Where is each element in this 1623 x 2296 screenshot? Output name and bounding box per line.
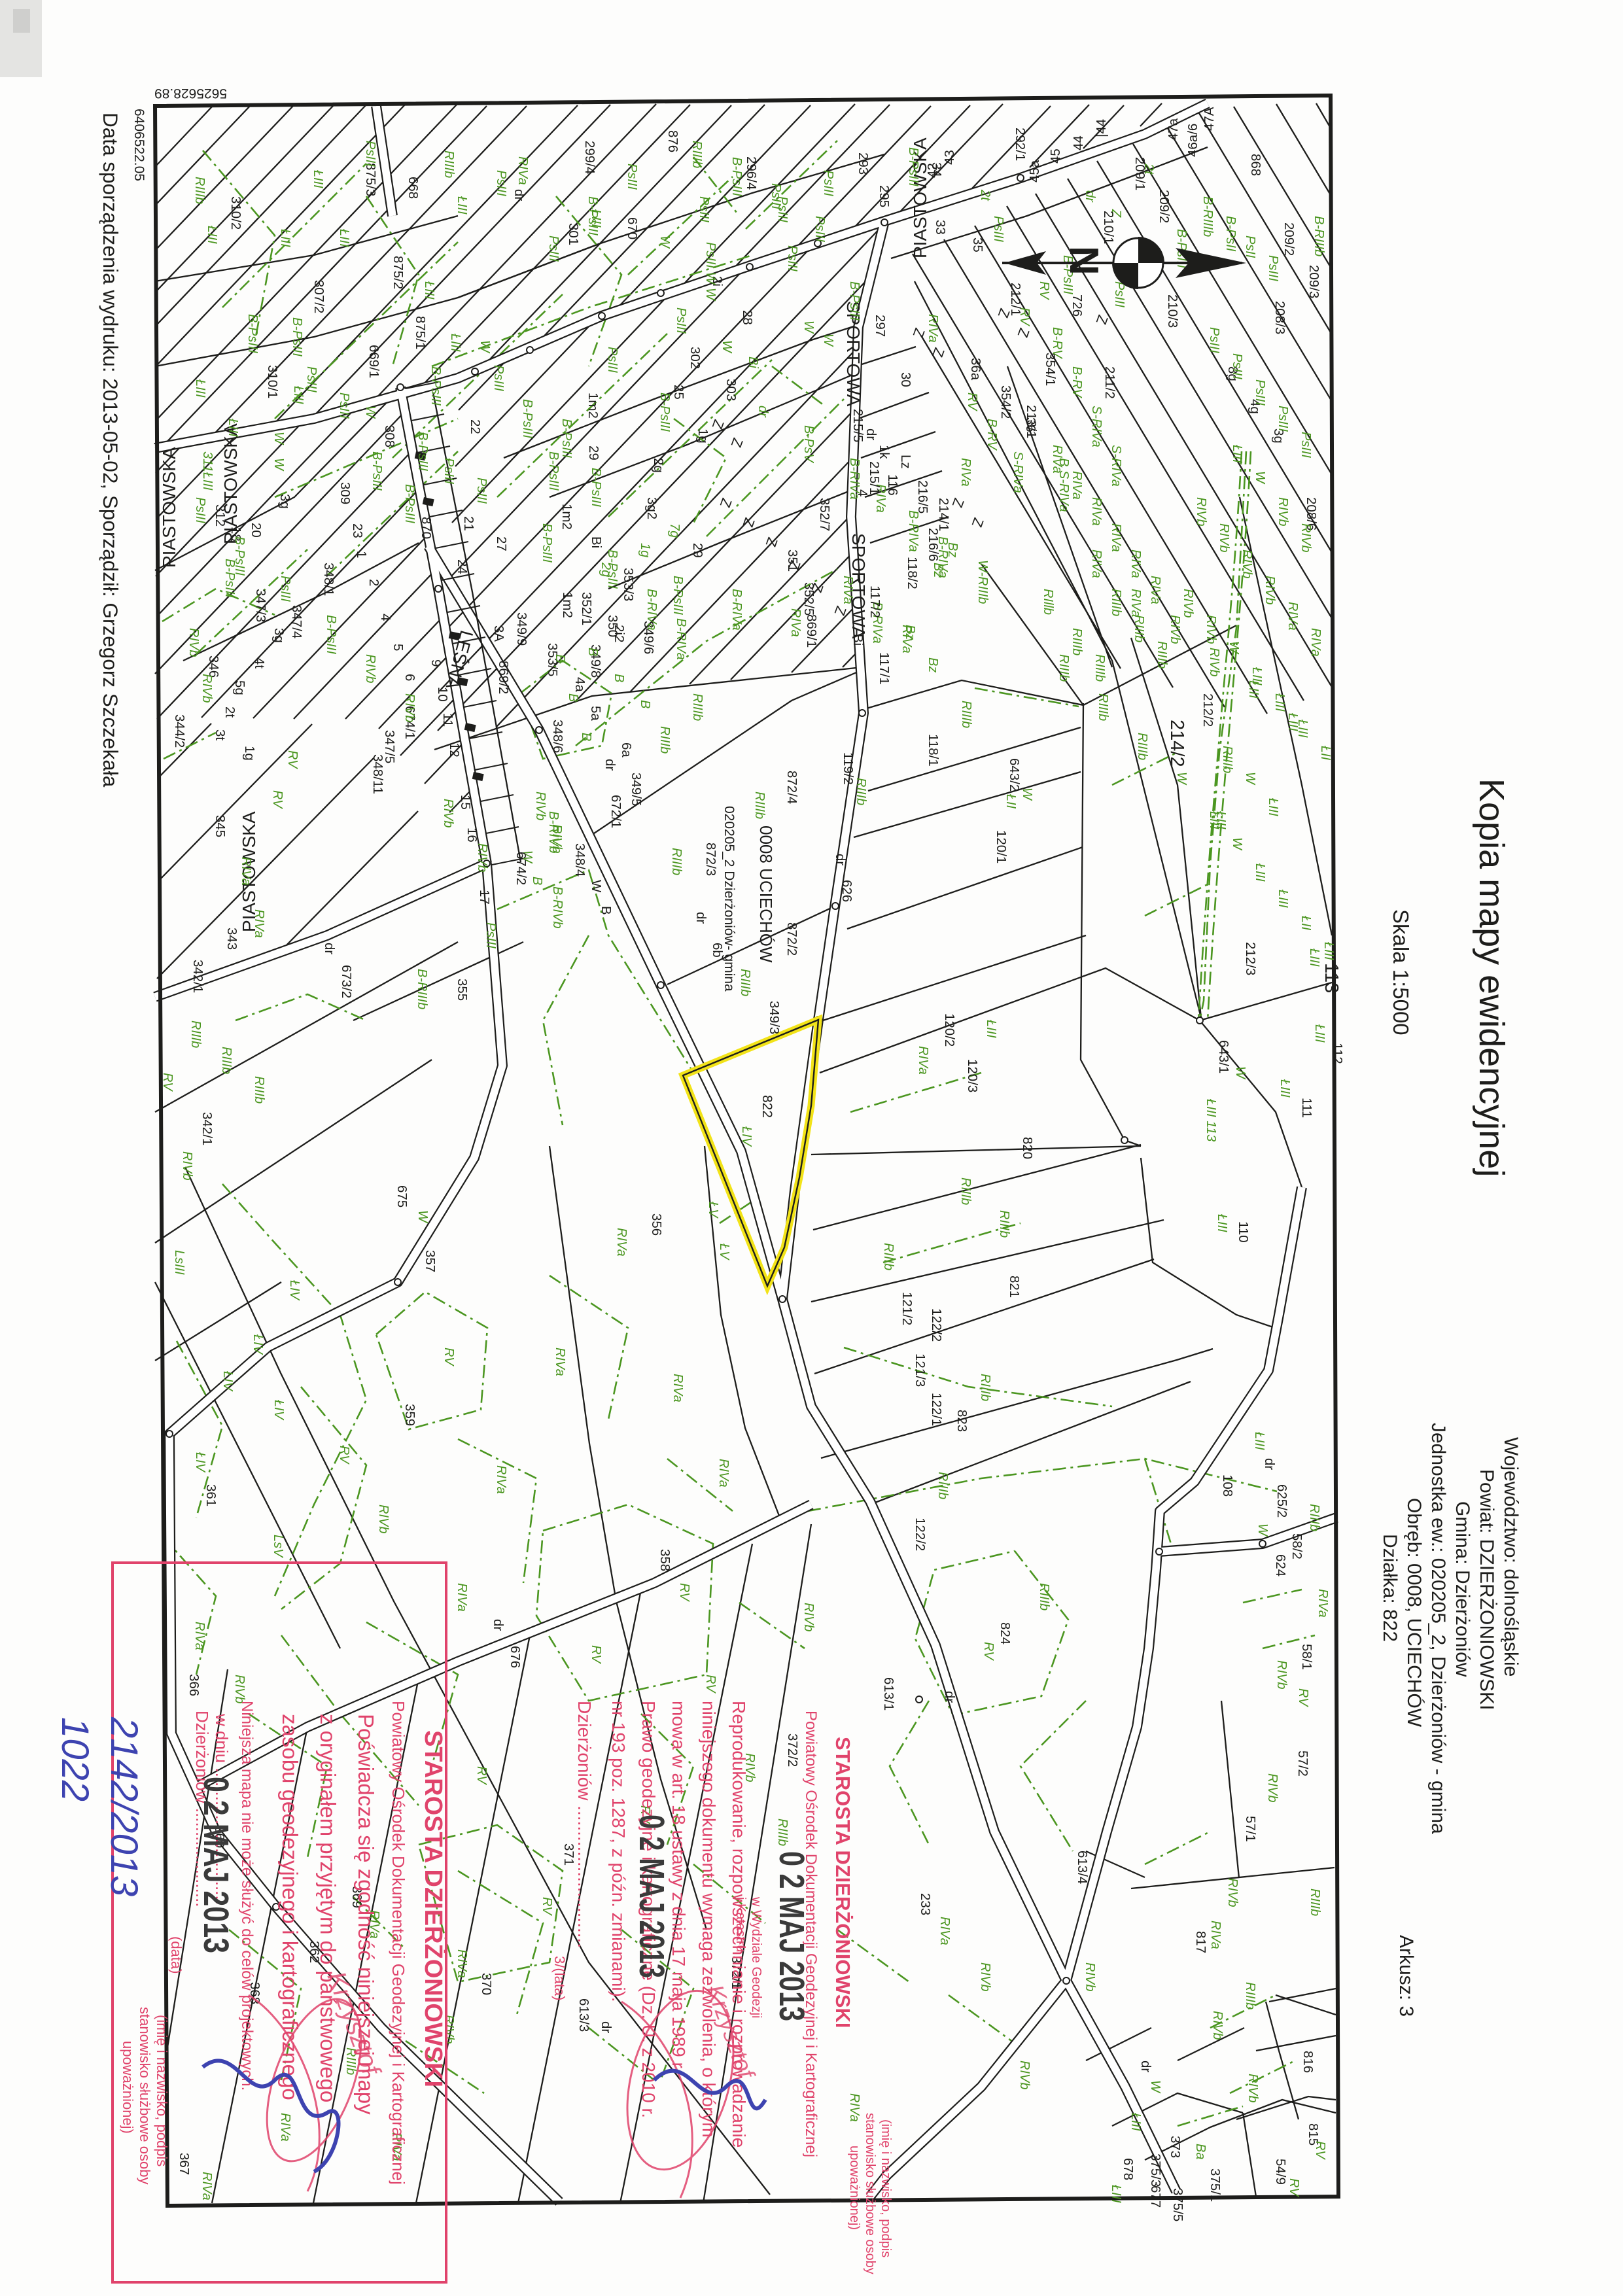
svg-text:1m2: 1m2 — [585, 392, 601, 419]
svg-text:ŁII: ŁII — [1299, 916, 1313, 931]
svg-text:824: 824 — [998, 1622, 1013, 1644]
svg-text:i Katastru: i Katastru — [733, 1897, 748, 1952]
svg-text:1022: 1022 — [54, 1717, 96, 1801]
svg-text:0 2 MAJ 2013: 0 2 MAJ 2013 — [632, 1815, 671, 1978]
svg-text:1m2: 1m2 — [560, 592, 575, 618]
svg-text:ŁII: ŁII — [1318, 746, 1333, 761]
svg-text:0 2 MAJ 2013: 0 2 MAJ 2013 — [196, 1777, 236, 1953]
svg-text:RV: RV — [589, 1645, 603, 1664]
svg-text:B-RIIIb: B-RIIIb — [1312, 216, 1326, 256]
svg-text:dr: dr — [756, 406, 770, 418]
svg-text:PsIII: PsIII — [812, 216, 827, 242]
svg-text:RIVb: RIVb — [1194, 497, 1208, 526]
svg-text:215/5: 215/5 — [850, 409, 865, 442]
svg-text:B-PsIII: B-PsIII — [370, 451, 384, 491]
svg-text:302: 302 — [688, 347, 703, 369]
svg-text:120/2: 120/2 — [942, 1013, 957, 1047]
svg-text:367: 367 — [177, 2153, 192, 2175]
svg-text:0 2 MAJ 2013: 0 2 MAJ 2013 — [772, 1851, 811, 2021]
svg-text:B-PsIII: B-PsIII — [671, 576, 685, 615]
svg-text:23: 23 — [350, 523, 365, 538]
svg-text:2t: 2t — [222, 706, 237, 718]
svg-text:PsIII: PsIII — [474, 478, 489, 504]
svg-text:348/4: 348/4 — [572, 843, 587, 877]
svg-text:dr: dr — [602, 759, 618, 771]
svg-text:ŁIII: ŁIII — [1252, 1432, 1266, 1450]
svg-text:Jednostka ew.: 020205_2, Dzier: Jednostka ew.: 020205_2, Dzierżoniów - g… — [1427, 1423, 1449, 1834]
svg-text:RIIIb: RIIIb — [1056, 654, 1071, 682]
svg-text:RIVb: RIVb — [180, 1151, 194, 1180]
svg-text:STAROSTA DZIERŻONIOWSKI: STAROSTA DZIERŻONIOWSKI — [831, 1737, 854, 2028]
svg-text:375/1: 375/1 — [1208, 2168, 1223, 2202]
svg-text:RIIIb: RIIIb — [657, 726, 672, 754]
svg-text:PsII: PsII — [1243, 235, 1257, 258]
svg-text:625/2: 625/2 — [1274, 1484, 1289, 1518]
svg-text:5: 5 — [391, 644, 406, 651]
svg-text:361: 361 — [203, 1484, 218, 1506]
svg-text:46a/6: 46a/6 — [1185, 124, 1200, 157]
svg-text:118/1: 118/1 — [926, 734, 941, 767]
svg-text:823: 823 — [954, 1410, 969, 1432]
svg-text:Powiatowy Ośrodek Dokumentacji: Powiatowy Ośrodek Dokumentacji Geodezyjn… — [389, 1701, 408, 2185]
svg-text:PsIII: PsIII — [821, 170, 835, 196]
svg-text:209/3: 209/3 — [1306, 265, 1321, 298]
svg-text:ŁIII: ŁIII — [226, 419, 240, 437]
svg-text:RIIIb: RIIIb — [219, 1047, 234, 1074]
svg-text:24: 24 — [455, 559, 470, 574]
svg-text:4t: 4t — [252, 657, 267, 669]
svg-text:ŁIII: ŁIII — [1276, 890, 1290, 908]
svg-text:RIVb: RIVb — [1225, 1878, 1240, 1907]
svg-text:B-PsIII: B-PsIII — [324, 615, 338, 654]
svg-text:B: B — [579, 733, 593, 741]
svg-text:PsIII: PsIII — [483, 922, 498, 948]
svg-text:stanowisko służbowe osoby: stanowisko służbowe osoby — [137, 2007, 153, 2184]
svg-text:W: W — [1174, 772, 1189, 786]
svg-text:3t: 3t — [213, 729, 228, 740]
svg-text:RV: RV — [160, 1073, 175, 1092]
svg-text:B-PsIII: B-PsIII — [906, 147, 920, 186]
svg-text:RIIIb: RIIIb — [192, 177, 207, 204]
svg-text:RIVb: RIVb — [1181, 589, 1195, 617]
svg-text:dr: dr — [942, 1691, 957, 1703]
svg-text:B: B — [553, 654, 567, 663]
svg-text:RV: RV — [677, 1583, 691, 1602]
svg-text:678: 678 — [1121, 2158, 1136, 2180]
svg-text:303: 303 — [724, 379, 739, 401]
svg-text:RV: RV — [270, 790, 285, 809]
svg-text:RIIIb: RIIIb — [935, 1472, 950, 1499]
svg-text:S-RIVa: S-RIVa — [1109, 445, 1123, 487]
svg-text:RIVb: RIVb — [1168, 615, 1182, 644]
svg-text:ŁIV: ŁIV — [251, 1334, 265, 1355]
svg-text:dr: dr — [512, 189, 527, 201]
svg-text:349/3: 349/3 — [767, 1001, 782, 1034]
svg-text:214/1: 214/1 — [936, 498, 951, 531]
svg-text:PsIII: PsIII — [1230, 353, 1244, 379]
svg-text:B-RIVa: B-RIVa — [906, 510, 920, 552]
svg-text:118/2: 118/2 — [905, 557, 920, 589]
svg-text:3A: 3A — [491, 625, 506, 642]
svg-text:RIVa: RIVa — [252, 909, 266, 938]
svg-text:613/1: 613/1 — [881, 1677, 896, 1711]
svg-text:RIVb: RIVb — [1210, 2011, 1225, 2040]
svg-text:RIIIb: RIIIb — [775, 1818, 790, 1846]
svg-text:1g: 1g — [638, 543, 652, 557]
svg-text:122/2: 122/2 — [913, 1518, 928, 1551]
svg-text:RIVa: RIVa — [841, 576, 855, 604]
svg-text:213/1: 213/1 — [1024, 405, 1039, 438]
svg-text:B-PsIII: B-PsIII — [657, 392, 672, 432]
svg-text:PsIII: PsIII — [363, 141, 377, 167]
svg-text:B-PsIII: B-PsIII — [232, 536, 247, 576]
svg-text:ŁIII: ŁIII — [1266, 798, 1280, 816]
svg-text:ŁII: ŁII — [1003, 794, 1018, 809]
svg-text:33: 33 — [933, 220, 948, 235]
svg-text:ŁIII: ŁIII — [422, 281, 436, 300]
svg-text:10: 10 — [435, 687, 450, 702]
svg-text:211/2: 211/2 — [1102, 366, 1117, 399]
svg-text:121/3: 121/3 — [913, 1353, 928, 1387]
svg-text:ŁIV: ŁIV — [739, 1126, 754, 1147]
svg-text:RIVb: RIVb — [978, 1962, 992, 1991]
svg-text:3g: 3g — [277, 494, 292, 509]
svg-text:W: W — [1020, 788, 1034, 801]
svg-text:ŁIII: ŁIII — [1215, 1214, 1229, 1232]
svg-text:RIVa: RIVa — [192, 1622, 207, 1650]
svg-text:210/1: 210/1 — [1101, 211, 1116, 244]
svg-text:020205_2 Dzierżoniów- gmina: 020205_2 Dzierżoniów- gmina — [722, 806, 737, 992]
svg-text:LsIII: LsIII — [172, 1250, 186, 1275]
svg-text:ŁIII: ŁIII — [1109, 2185, 1123, 2203]
svg-text:2g: 2g — [651, 458, 666, 473]
svg-text:RIIIb: RIIIb — [738, 969, 752, 996]
svg-text:210/3: 210/3 — [1165, 294, 1180, 328]
svg-text:RIVb: RIVb — [1276, 497, 1290, 526]
svg-text:ŁV: ŁV — [717, 1244, 731, 1261]
svg-text:875/2: 875/2 — [391, 256, 406, 289]
svg-text:2t: 2t — [978, 189, 992, 201]
svg-text:W: W — [415, 1210, 430, 1224]
svg-text:Powiat: DZIERŻONIOWSKI: Powiat: DZIERŻONIOWSKI — [1476, 1469, 1497, 1710]
svg-text:B-RIVb: B-RIVb — [550, 886, 565, 928]
svg-text:875/1: 875/1 — [413, 316, 428, 349]
svg-text:817: 817 — [1193, 1931, 1208, 1953]
svg-text:RIVb: RIVb — [376, 1505, 391, 1533]
svg-text:116: 116 — [885, 474, 900, 496]
svg-text:RV: RV — [1037, 281, 1051, 300]
svg-text:44: 44 — [1071, 135, 1086, 150]
svg-text:RIVa: RIVa — [455, 1949, 469, 1978]
svg-text:307/2: 307/2 — [311, 280, 326, 313]
svg-text:RIIIb: RIIIb — [881, 1243, 896, 1270]
svg-text:366: 366 — [186, 1674, 201, 1696]
svg-text:RIIIb: RIIIb — [252, 1076, 266, 1104]
svg-text:1m2: 1m2 — [559, 504, 574, 530]
svg-text:726: 726 — [1070, 294, 1085, 317]
svg-text:ŁIII: ŁIII — [1272, 693, 1287, 712]
svg-text:RIVa: RIVa — [916, 1046, 930, 1075]
svg-text:11: 11 — [440, 713, 455, 727]
svg-text:RV: RV — [474, 1766, 489, 1785]
svg-text:57/2: 57/2 — [1295, 1750, 1310, 1777]
svg-text:W: W — [271, 458, 286, 472]
svg-text:670: 670 — [625, 217, 640, 239]
svg-text:RIVa: RIVa — [1208, 1921, 1223, 1949]
svg-text:299/4: 299/4 — [582, 141, 597, 174]
svg-text:Skala 1:5000: Skala 1:5000 — [1389, 909, 1413, 1035]
svg-text:B-PsV: B-PsV — [801, 425, 816, 463]
svg-text:RV: RV — [1313, 2141, 1327, 2160]
svg-text:348/6: 348/6 — [550, 720, 565, 753]
svg-text:RIVa: RIVa — [847, 2093, 862, 2122]
svg-text:dr: dr — [693, 912, 708, 924]
svg-text:4: 4 — [855, 489, 870, 496]
svg-text:Bi: Bi — [589, 536, 604, 548]
svg-text:343: 343 — [224, 928, 239, 950]
svg-text:RIVb: RIVb — [1265, 1773, 1280, 1802]
svg-text:347/4: 347/4 — [289, 605, 304, 638]
svg-text:233: 233 — [918, 1893, 933, 1915]
svg-text:RIVa: RIVa — [671, 1374, 685, 1402]
svg-text:W: W — [821, 334, 835, 347]
svg-text:LsV: LsV — [271, 1535, 285, 1558]
svg-text:209/2: 209/2 — [1282, 222, 1297, 256]
svg-text:RIIIb: RIIIb — [1308, 1888, 1322, 1916]
svg-text:295: 295 — [877, 185, 892, 207]
svg-text:B-RIVb: B-RIVb — [546, 811, 561, 853]
svg-text:PsIII W W: PsIII W W — [703, 242, 718, 302]
svg-text:Obręb: 0008, UCIECHÓW: Obręb: 0008, UCIECHÓW — [1403, 1498, 1425, 1728]
svg-text:668: 668 — [406, 177, 421, 199]
svg-text:PsIII: PsIII — [491, 365, 506, 391]
svg-text:PsIII: PsIII — [1299, 432, 1313, 458]
svg-text:352/1: 352/1 — [579, 592, 594, 625]
svg-text:PsIII: PsIII — [1112, 281, 1126, 307]
svg-text:ŁIII: ŁIII — [1321, 942, 1336, 960]
svg-text:355: 355 — [455, 979, 470, 1001]
svg-text:RIIIb: RIIIb — [978, 1374, 992, 1401]
svg-text:W: W — [1233, 1066, 1248, 1080]
svg-text:209/1: 209/1 — [1132, 157, 1147, 190]
svg-text:B-PsIII: B-PsIII — [847, 281, 862, 321]
svg-text:348/1: 348/1 — [321, 563, 336, 596]
svg-text:673/2: 673/2 — [339, 965, 354, 998]
svg-text:357: 357 — [423, 1250, 438, 1272]
svg-text:RIVa: RIVa — [716, 1459, 731, 1487]
svg-text:1g: 1g — [242, 746, 257, 761]
svg-text:359: 359 — [402, 1404, 417, 1426]
svg-text:PsIII: PsIII — [605, 347, 620, 373]
svg-text:3g: 3g — [271, 628, 287, 643]
svg-text:RIVa: RIVa — [788, 608, 803, 637]
svg-text:niniejszego dokumentu wymaga z: niniejszego dokumentu wymaga zezwolenia,… — [699, 1701, 719, 2138]
svg-text:6a: 6a — [619, 742, 634, 757]
svg-text:373: 373 — [1168, 2136, 1183, 2158]
svg-text:16: 16 — [464, 827, 480, 843]
svg-text:119/2: 119/2 — [841, 752, 856, 785]
svg-text:122/2: 122/2 — [929, 1308, 944, 1342]
svg-text:RIVa: RIVa — [926, 314, 940, 343]
svg-text:RIIIb: RIIIb — [959, 701, 973, 728]
svg-text:RIVb: RIVb — [1274, 1660, 1289, 1689]
svg-text:B-RV: B-RV — [985, 419, 999, 451]
svg-text:310/2: 310/2 — [228, 196, 243, 230]
svg-text:PsIII: PsIII — [991, 216, 1005, 242]
svg-text:RIIIb: RIIIb — [1243, 1982, 1257, 2009]
svg-text:347/3: 347/3 — [253, 589, 268, 622]
svg-text:RIVb: RIVb — [1207, 648, 1221, 676]
svg-text:353/3: 353/3 — [621, 568, 636, 601]
svg-text:5625628.89: 5625628.89 — [154, 86, 227, 101]
svg-text:PsIII: PsIII — [1207, 327, 1221, 353]
svg-text:42: 42 — [925, 163, 940, 178]
svg-text:RIIIb: RIIIb — [690, 693, 705, 721]
svg-text:PsIII: PsIII — [304, 366, 319, 392]
svg-text:RIIIb: RIIIb — [1092, 654, 1107, 682]
svg-text:677: 677 — [1148, 2185, 1163, 2208]
svg-text:dr: dr — [491, 1619, 506, 1631]
svg-text:RIVb: RIVb — [1017, 2061, 1032, 2089]
svg-text:309: 309 — [338, 482, 353, 504]
svg-text:(data): (data) — [168, 1936, 184, 1974]
svg-text:RIVb: RIVb — [1246, 2074, 1260, 2102]
svg-text:B-PsIII: B-PsIII — [585, 196, 600, 235]
svg-text:PsIII: PsIII — [193, 497, 207, 523]
svg-text:ŁIII: ŁIII — [1285, 713, 1300, 731]
svg-text:ŁIII: ŁIII — [1253, 863, 1267, 882]
svg-text:RIVb: RIVb — [1083, 1962, 1097, 1991]
svg-text:RIVb: RIVb — [533, 791, 548, 820]
svg-text:zasobu geodezyjnego i kartogra: zasobu geodezyjnego i kartograficznego — [278, 1714, 302, 2100]
svg-text:B: B — [585, 648, 600, 656]
svg-text:1g: 1g — [695, 428, 710, 444]
svg-text:ŁIII: ŁIII — [193, 379, 207, 398]
svg-text:W: W — [1227, 641, 1241, 655]
svg-text:PIASTOWSKA: PIASTOWSKA — [220, 423, 241, 544]
svg-text:B-PsIII: B-PsIII — [520, 399, 534, 438]
svg-text:121/2: 121/2 — [899, 1292, 915, 1325]
svg-text:54/9: 54/9 — [1273, 2159, 1288, 2185]
svg-text:RV: RV — [703, 1675, 718, 1694]
svg-text:ŁIII 113: ŁIII 113 — [1204, 1099, 1218, 1141]
svg-text:(imię i nazwisko, podpis: (imię i nazwisko, podpis — [154, 2015, 170, 2166]
svg-text:B-PsIII: B-PsIII — [415, 432, 430, 471]
svg-text:ŁIII: ŁIII — [311, 170, 325, 188]
svg-text:dr: dr — [864, 428, 879, 440]
svg-text:B-PsIII: B-PsIII — [546, 451, 561, 491]
svg-text:RIIIb: RIIIb — [689, 141, 704, 168]
svg-text:RIVa: RIVa — [1089, 549, 1104, 578]
svg-text:B-PsIII: B-PsIII — [589, 468, 603, 507]
svg-text:208/3: 208/3 — [1272, 301, 1287, 334]
svg-text:RV: RV — [540, 1897, 554, 1916]
svg-text:PsIII: PsIII — [785, 245, 799, 271]
svg-text:B-PsIII: B-PsIII — [245, 314, 260, 353]
svg-text:352/7: 352/7 — [817, 498, 832, 531]
svg-text:RIVb: RIVb — [441, 799, 455, 827]
svg-text:816: 816 — [1300, 2051, 1316, 2073]
svg-text:22: 22 — [468, 419, 483, 434]
svg-text:RIIIb: RIIIb — [1096, 693, 1110, 721]
svg-text:RIVa: RIVa — [239, 857, 253, 886]
svg-text:B-RIVa: B-RIVa — [674, 618, 688, 660]
svg-text:301: 301 — [566, 223, 581, 245]
svg-text:297: 297 — [873, 315, 888, 337]
svg-text:372/2: 372/2 — [785, 1733, 800, 1767]
svg-text:B-RIVa: B-RIVa — [729, 589, 744, 631]
svg-text:354/2: 354/2 — [998, 385, 1013, 419]
svg-text:PsIII: PsIII — [1253, 379, 1267, 406]
svg-text:212/2: 212/2 — [1200, 693, 1215, 727]
svg-text:45: 45 — [1048, 148, 1063, 164]
svg-text:B: B — [566, 693, 580, 702]
svg-text:212/3: 212/3 — [1243, 942, 1258, 975]
svg-text:RIIIb: RIIIb — [1037, 1583, 1051, 1610]
svg-text:dr: dr — [1262, 1458, 1277, 1470]
svg-text:47A: 47A — [1202, 107, 1217, 131]
svg-text:RIIIb: RIIIb — [669, 848, 684, 875]
svg-text:ŁIII: ŁIII — [1307, 948, 1321, 967]
svg-text:B-RV: B-RV — [1070, 366, 1084, 398]
svg-text:872/2: 872/2 — [784, 922, 799, 956]
svg-text:30: 30 — [898, 372, 913, 387]
svg-text:PsIII: PsIII — [775, 196, 790, 222]
svg-text:1: 1 — [354, 551, 369, 558]
svg-text:613/3: 613/3 — [576, 1998, 591, 2032]
svg-text:216/5: 216/5 — [915, 480, 930, 513]
svg-text:z oryginałem przyjętym do pańs: z oryginałem przyjętym do państwowego — [316, 1714, 340, 2102]
svg-text:Działka: 822: Działka: 822 — [1379, 1534, 1401, 1642]
svg-text:ŁIII: ŁIII — [455, 196, 469, 215]
svg-text:ŁIII: ŁIII — [337, 229, 351, 247]
svg-text:47a: 47a — [1166, 118, 1181, 141]
svg-text:PsIII: PsIII — [494, 170, 508, 196]
svg-text:29: 29 — [690, 543, 705, 558]
svg-text:12: 12 — [447, 742, 462, 757]
svg-text:7g: 7g — [667, 523, 682, 538]
svg-text:624: 624 — [1273, 1554, 1288, 1576]
svg-text:RIVb: RIVb — [402, 693, 417, 722]
svg-text:RIVb: RIVb — [363, 654, 377, 683]
svg-text:Ba: Ba — [1193, 2144, 1208, 2159]
svg-text:B-PsIII: B-PsIII — [605, 549, 620, 589]
svg-text:W: W — [1253, 471, 1267, 485]
svg-text:RV: RV — [442, 1348, 456, 1366]
svg-text:674/2: 674/2 — [514, 852, 529, 885]
svg-text:PsIII: PsIII — [674, 307, 688, 334]
svg-text:RV: RV — [981, 1642, 996, 1661]
svg-text:43: 43 — [942, 150, 957, 165]
svg-text:RIVa: RIVa — [1308, 628, 1323, 657]
svg-text:RIllb: RIllb — [1041, 589, 1055, 615]
svg-text:RIVb: RIVb — [801, 1603, 816, 1631]
svg-text:RIVa: RIVa — [455, 1583, 469, 1612]
svg-text:29: 29 — [586, 445, 601, 461]
svg-text:N: N — [1061, 246, 1106, 275]
svg-text:Bz: Bz — [931, 563, 945, 578]
svg-text:342/1: 342/1 — [200, 1112, 215, 1145]
svg-text:875/3: 875/3 — [363, 163, 378, 196]
svg-text:2: 2 — [366, 579, 381, 586]
svg-text:(imię i nazwisko, podpis: (imię i nazwisko, podpis — [879, 2119, 893, 2257]
svg-text:821: 821 — [1007, 1276, 1022, 1298]
svg-text:872/4: 872/4 — [784, 771, 799, 804]
svg-text:RIIIb: RIIIb — [442, 150, 456, 178]
svg-text:B-RIIIb: B-RIIIb — [1200, 196, 1215, 237]
svg-text:5a: 5a — [588, 706, 603, 721]
svg-text:ŁIII: ŁIII — [448, 334, 462, 352]
